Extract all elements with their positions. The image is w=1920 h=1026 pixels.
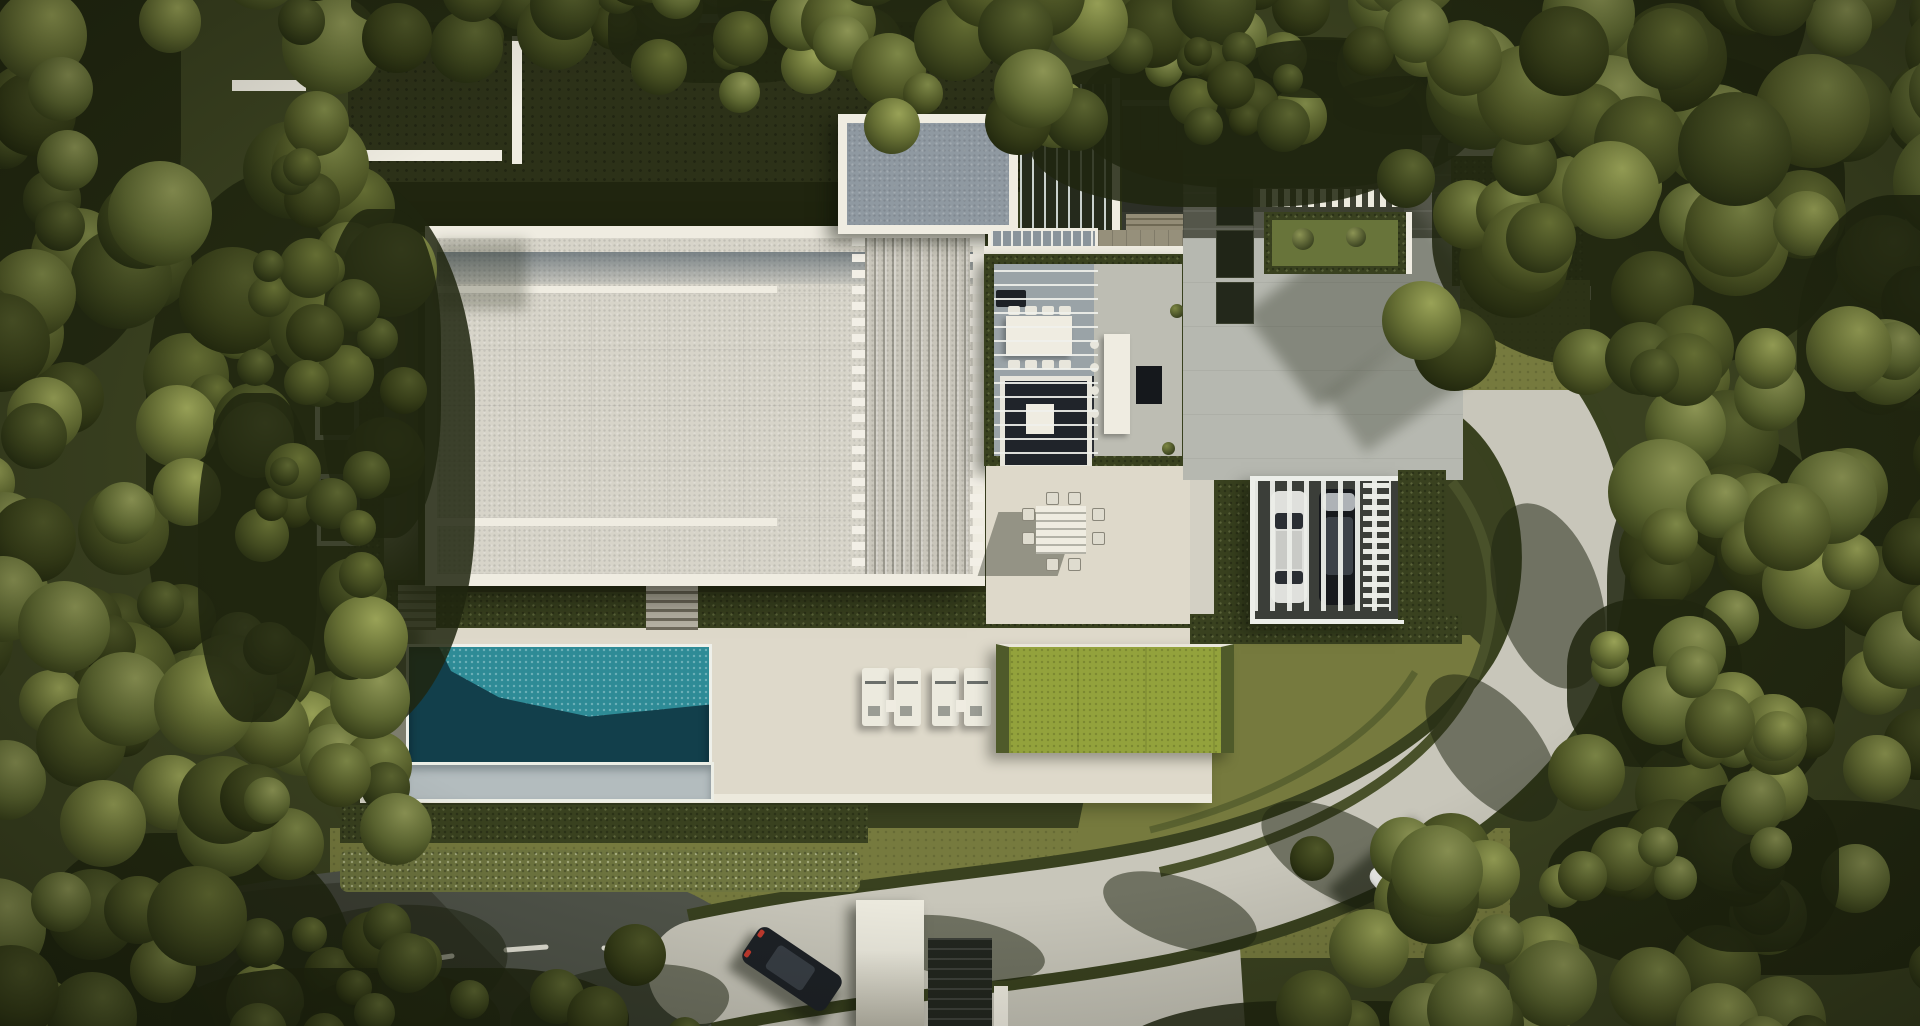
tree-canopy: [284, 360, 329, 405]
tree-canopy: [1562, 141, 1659, 238]
tree-canopy: [1273, 64, 1303, 94]
tree-canopy: [1744, 483, 1832, 571]
tree-canopy: [284, 91, 349, 156]
tree-canopy: [339, 552, 384, 597]
tree-canopy: [1750, 827, 1792, 869]
tree-canopy: [1666, 646, 1718, 698]
tree-canopy: [244, 777, 290, 823]
tree-canopy: [283, 148, 321, 186]
tree-canopy: [667, 1017, 704, 1026]
tree-canopy: [354, 993, 394, 1026]
aerial-villa-render: [0, 0, 1920, 1026]
tree-canopy: [37, 130, 98, 191]
tree-canopy: [286, 304, 344, 362]
tree-canopy: [1630, 349, 1678, 397]
tree-canopy: [60, 780, 147, 867]
tree-canopy: [1473, 914, 1525, 966]
tree-canopy: [719, 72, 760, 113]
tree-canopy: [340, 510, 376, 546]
tree-canopy: [1184, 107, 1222, 145]
tree-canopy: [279, 238, 339, 298]
tree-canopy: [1590, 631, 1628, 669]
tree-canopy: [1753, 711, 1802, 760]
tree-canopy: [1721, 771, 1786, 836]
tree-canopy: [1519, 6, 1609, 96]
tree-canopy: [1548, 734, 1625, 811]
tree-canopy: [1384, 0, 1450, 63]
tree-canopy: [1184, 37, 1212, 65]
tree-canopy: [18, 581, 110, 673]
tree-canopy: [1806, 0, 1872, 57]
tree-canopy: [377, 933, 437, 993]
tree-canopy: [35, 201, 85, 251]
tree-canopy: [324, 596, 407, 679]
tree-canopy: [237, 349, 274, 386]
tree-canopy: [1, 403, 67, 469]
tree-canopy: [1382, 281, 1461, 360]
tree-canopy: [1377, 149, 1435, 207]
tree-canopy: [430, 11, 503, 84]
tree-canopy: [1685, 689, 1755, 759]
tree-canopy: [1735, 328, 1796, 389]
tree-canopy: [360, 793, 432, 865]
tree-canopy: [28, 57, 93, 122]
tree-canopy: [137, 581, 184, 628]
tree-canopy: [253, 250, 284, 281]
tree-canopy: [147, 866, 247, 966]
tree-canopy: [1290, 836, 1335, 881]
tree-canopy: [864, 98, 920, 154]
tree-canopy: [450, 980, 489, 1019]
tree-canopy: [1257, 99, 1310, 152]
tree-canopy: [108, 161, 212, 265]
tree-canopy: [1678, 92, 1792, 206]
tree-canopy: [1207, 61, 1255, 109]
tree-canopy: [994, 49, 1073, 128]
tree-canopy: [1558, 851, 1607, 900]
tree-canopy: [292, 917, 327, 952]
tree-canopy: [380, 367, 427, 414]
tree-canopy: [93, 482, 155, 544]
tree-canopy: [31, 872, 91, 932]
tree-canopy: [1627, 8, 1709, 90]
tree-canopy: [362, 3, 432, 73]
tree-canopy: [1276, 970, 1353, 1026]
tree-canopy: [1229, 104, 1261, 136]
tree-canopy: [604, 924, 666, 986]
tree-canopy: [1272, 0, 1329, 36]
tree-canopy: [631, 39, 687, 95]
tree-canopy: [270, 457, 299, 486]
tree-canopy: [307, 743, 371, 807]
tree-canopy: [1843, 735, 1911, 803]
tree-canopy-layer: [0, 0, 1920, 1026]
